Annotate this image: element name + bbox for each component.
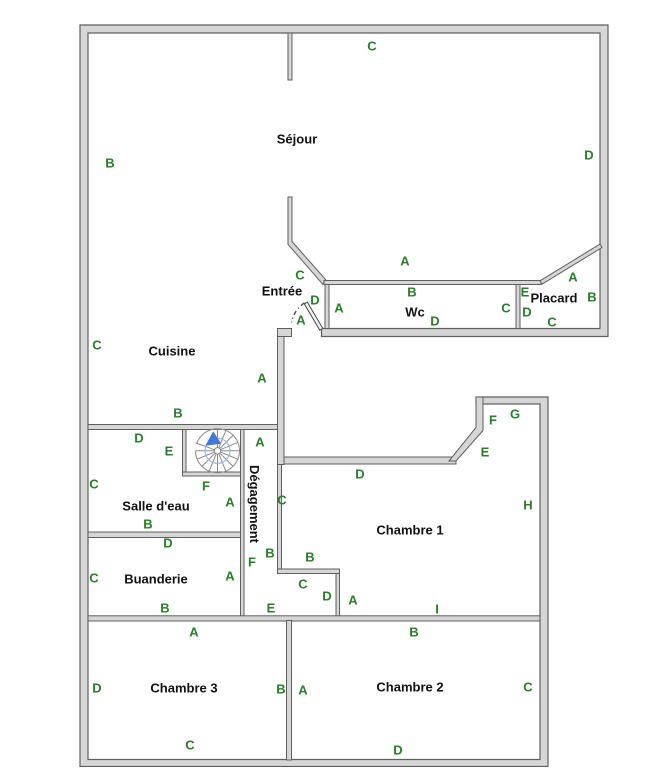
svg-text:Salle d'eau: Salle d'eau — [122, 499, 189, 514]
svg-text:A: A — [296, 313, 306, 328]
svg-text:C: C — [295, 268, 305, 283]
svg-text:C: C — [89, 571, 99, 586]
svg-text:F: F — [202, 479, 210, 494]
svg-text:E: E — [267, 601, 276, 616]
svg-text:D: D — [322, 589, 331, 604]
svg-text:B: B — [276, 682, 285, 697]
svg-text:E: E — [165, 444, 174, 459]
svg-text:C: C — [501, 301, 511, 316]
svg-text:D: D — [393, 743, 402, 758]
svg-text:B: B — [173, 406, 182, 421]
svg-text:C: C — [298, 577, 308, 592]
svg-text:D: D — [92, 681, 101, 696]
svg-text:H: H — [523, 498, 532, 513]
svg-text:C: C — [89, 477, 99, 492]
svg-text:C: C — [277, 493, 287, 508]
svg-text:A: A — [255, 435, 265, 450]
svg-text:D: D — [310, 293, 319, 308]
svg-text:C: C — [547, 315, 557, 330]
svg-text:A: A — [400, 254, 410, 269]
svg-text:Entrée: Entrée — [262, 284, 302, 299]
svg-text:A: A — [225, 569, 235, 584]
svg-text:Chambre 1: Chambre 1 — [376, 523, 443, 538]
svg-text:B: B — [305, 550, 314, 565]
svg-text:A: A — [298, 683, 308, 698]
svg-text:C: C — [92, 338, 102, 353]
svg-text:B: B — [407, 285, 416, 300]
svg-text:Dégagement: Dégagement — [247, 465, 262, 544]
svg-text:B: B — [265, 546, 274, 561]
svg-text:C: C — [367, 39, 377, 54]
svg-text:B: B — [587, 290, 596, 305]
svg-text:D: D — [430, 314, 439, 329]
svg-text:C: C — [185, 738, 195, 753]
svg-text:F: F — [489, 413, 497, 428]
svg-text:F: F — [248, 555, 256, 570]
svg-text:A: A — [189, 625, 199, 640]
svg-text:D: D — [134, 431, 143, 446]
svg-text:B: B — [160, 601, 169, 616]
svg-text:B: B — [105, 156, 114, 171]
svg-text:A: A — [334, 301, 344, 316]
svg-text:B: B — [143, 517, 152, 532]
svg-text:E: E — [521, 285, 530, 300]
svg-text:Wc: Wc — [405, 305, 425, 320]
svg-text:Chambre 3: Chambre 3 — [150, 681, 217, 696]
svg-text:Chambre 2: Chambre 2 — [376, 680, 443, 695]
svg-text:D: D — [522, 305, 531, 320]
svg-text:A: A — [348, 593, 358, 608]
svg-text:G: G — [510, 407, 520, 422]
svg-text:Séjour: Séjour — [277, 132, 317, 147]
svg-text:Cuisine: Cuisine — [149, 344, 196, 359]
svg-text:A: A — [257, 371, 267, 386]
svg-text:B: B — [409, 625, 418, 640]
svg-text:D: D — [584, 148, 593, 163]
svg-text:E: E — [481, 445, 490, 460]
svg-text:Buanderie: Buanderie — [124, 572, 188, 587]
svg-text:I: I — [435, 602, 439, 617]
svg-text:D: D — [163, 536, 172, 551]
svg-text:Placard: Placard — [531, 291, 578, 306]
svg-text:D: D — [355, 467, 364, 482]
svg-text:A: A — [225, 495, 235, 510]
svg-text:A: A — [568, 270, 578, 285]
svg-text:C: C — [523, 680, 533, 695]
